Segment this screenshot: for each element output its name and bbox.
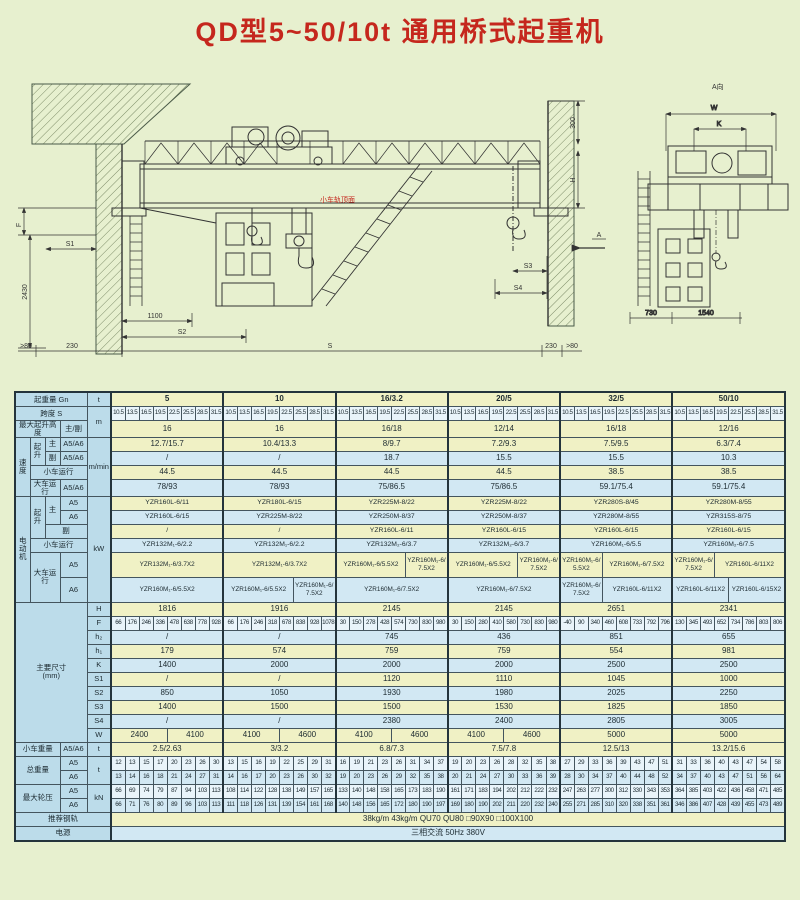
data-cell: 13 <box>111 770 125 784</box>
data-cell: 473 <box>756 798 770 812</box>
data-cell: 44.5 <box>111 465 223 479</box>
data-cell: 277 <box>588 784 602 798</box>
data-cell: 47 <box>728 770 742 784</box>
row-label-cell: F <box>87 616 111 630</box>
data-cell: 730 <box>406 616 420 630</box>
data-cell: 54 <box>756 756 770 770</box>
data-cell: 796 <box>658 616 672 630</box>
data-cell: 140 <box>350 784 364 798</box>
data-cell: 33 <box>588 756 602 770</box>
data-cell: YZR315S-8/75 <box>672 510 785 524</box>
data-cell: 75/86.5 <box>336 479 448 496</box>
data-cell: 733 <box>630 616 644 630</box>
row-label-cell: 跨度 S <box>15 407 87 421</box>
data-cell: 320 <box>616 798 630 812</box>
data-cell: 2000 <box>336 658 448 672</box>
data-cell: 89 <box>167 798 181 812</box>
data-cell: YZR160M₁-6/5.5X2 <box>336 552 406 577</box>
data-cell: 10.5 <box>111 407 125 421</box>
row-label-cell: A5 <box>60 784 87 798</box>
data-cell: 44.5 <box>223 465 335 479</box>
data-cell: 32 <box>322 770 336 784</box>
data-cell: 74 <box>139 784 153 798</box>
data-cell: 655 <box>672 630 785 644</box>
page-title: QD型5~50/10t 通用桥式起重机 <box>0 0 800 51</box>
data-cell: 111 <box>223 798 237 812</box>
data-cell: 19 <box>448 756 462 770</box>
operator-cab <box>130 164 432 306</box>
data-cell: 3/3.2 <box>223 742 335 756</box>
data-cell: 28 <box>504 756 518 770</box>
data-cell: 51 <box>742 770 756 784</box>
data-cell: YZR160L-6/11X2 <box>602 577 672 602</box>
data-cell: 66 <box>111 784 125 798</box>
data-cell: 31.5 <box>322 407 336 421</box>
data-cell: 22 <box>279 756 293 770</box>
data-cell: 48 <box>644 770 658 784</box>
data-cell: 180 <box>406 798 420 812</box>
row-label-cell: S4 <box>87 714 111 728</box>
data-cell: 285 <box>588 798 602 812</box>
data-cell: 6.3/7.4 <box>672 437 785 451</box>
dim-230-right: 230 <box>545 343 557 350</box>
data-cell: 13.5 <box>574 407 588 421</box>
data-cell: 1120 <box>336 672 448 686</box>
row-label-cell: 大车运行 <box>30 479 60 496</box>
data-cell: 158 <box>378 784 392 798</box>
dim-s1: S1 <box>66 241 75 248</box>
data-cell: 38.5 <box>672 465 785 479</box>
data-cell: 5000 <box>560 728 672 742</box>
row-label-cell: 起升 <box>30 496 45 538</box>
rail-top-note: 小车轨顶面 <box>320 195 355 204</box>
data-cell: 35 <box>420 770 434 784</box>
data-cell: 4600 <box>279 728 335 742</box>
data-cell: 16/18 <box>336 421 448 438</box>
data-cell: 14 <box>223 770 237 784</box>
data-cell: 16/18 <box>560 421 672 438</box>
data-cell: 493 <box>700 616 714 630</box>
data-cell: 222 <box>532 784 546 798</box>
data-cell: 37 <box>602 770 616 784</box>
data-cell: 78/93 <box>111 479 223 496</box>
data-cell: YZR160M₁-6/5.5X2 <box>111 577 223 602</box>
data-cell: 13.5 <box>125 407 139 421</box>
data-cell: 156 <box>364 798 378 812</box>
data-cell: YZR132M₂-6/3.7 <box>336 538 448 552</box>
data-cell: 574 <box>392 616 406 630</box>
data-cell: 43 <box>728 756 742 770</box>
data-cell: 75/86.5 <box>448 479 560 496</box>
right-wall <box>548 101 574 326</box>
data-cell: 19.5 <box>265 407 279 421</box>
row-label-cell: A5 <box>60 496 87 510</box>
aux-hook <box>247 208 262 245</box>
data-cell: 139 <box>279 798 293 812</box>
data-cell: 436 <box>728 784 742 798</box>
data-cell: 6.8/7.3 <box>336 742 448 756</box>
data-cell: YZR160L-6/11 <box>336 524 448 538</box>
data-cell: 22.5 <box>504 407 518 421</box>
data-cell: 30 <box>504 770 518 784</box>
data-cell: 13.5 <box>462 407 476 421</box>
dim-230-left: 230 <box>66 343 78 350</box>
data-cell: 10.5 <box>560 407 574 421</box>
data-cell: 66 <box>223 616 237 630</box>
data-cell: 2145 <box>448 602 560 616</box>
data-cell: 66 <box>111 798 125 812</box>
data-cell: 90 <box>574 616 588 630</box>
dim-2430: 2430 <box>22 284 29 300</box>
data-cell: 20 <box>448 770 462 784</box>
data-cell: / <box>111 672 223 686</box>
data-cell: 35 <box>532 756 546 770</box>
dim-gt80-right: >80 <box>566 343 578 350</box>
data-cell: YZR132M₁-6/2.2 <box>111 538 223 552</box>
data-cell: 31.5 <box>434 407 448 421</box>
data-cell: 980 <box>434 616 448 630</box>
data-cell: 31.5 <box>658 407 672 421</box>
data-cell: 1916 <box>223 602 335 616</box>
data-cell: 190 <box>420 798 434 812</box>
row-label-cell: h₁ <box>87 644 111 658</box>
data-cell: 10.5 <box>672 407 686 421</box>
data-cell: 778 <box>195 616 209 630</box>
data-cell: 759 <box>336 644 448 658</box>
data-cell: YZR132M₂-6/3.7 <box>448 538 560 552</box>
row-label-cell: H <box>87 602 111 616</box>
data-cell: 130 <box>672 616 686 630</box>
data-cell: 4600 <box>392 728 448 742</box>
data-cell: 176 <box>237 616 251 630</box>
data-cell: 1078 <box>322 616 336 630</box>
data-cell: 39 <box>546 770 560 784</box>
spec-table: 起重量 Gnt51016/3.220/532/550/10跨度 Sm10.513… <box>14 391 786 842</box>
row-label-cell: K <box>87 658 111 672</box>
data-cell: 21 <box>167 770 181 784</box>
data-cell: 22.5 <box>728 407 742 421</box>
data-cell: 4100 <box>223 728 279 742</box>
data-cell: 38.5 <box>560 465 672 479</box>
data-cell: YZR160M₁-6/5.5X2 <box>448 552 518 577</box>
data-cell: 16/3.2 <box>336 392 448 407</box>
data-cell: 37 <box>686 770 700 784</box>
data-cell: 338 <box>630 798 644 812</box>
bridge-girder <box>112 141 568 216</box>
data-cell: 2805 <box>560 714 672 728</box>
row-label-cell: 最大轮压 <box>15 784 60 812</box>
data-cell: 1045 <box>560 672 672 686</box>
data-cell: 39 <box>616 756 630 770</box>
data-cell: 31.5 <box>209 407 223 421</box>
data-cell: 2500 <box>672 658 785 672</box>
data-cell: 403 <box>700 784 714 798</box>
data-cell: 410 <box>490 616 504 630</box>
data-cell: 154 <box>293 798 307 812</box>
data-cell: 361 <box>658 798 672 812</box>
data-cell: 27 <box>195 770 209 784</box>
data-cell: / <box>111 714 223 728</box>
data-cell: 10.5 <box>448 407 462 421</box>
data-cell: 172 <box>392 798 406 812</box>
data-cell: 27 <box>490 770 504 784</box>
row-label-cell: A6 <box>60 798 87 812</box>
data-cell: 26 <box>293 770 307 784</box>
data-cell: 16.5 <box>251 407 265 421</box>
end-view-trolley <box>668 146 772 184</box>
data-cell: 122 <box>251 784 265 798</box>
data-cell: 4100 <box>448 728 504 742</box>
data-cell: 13 <box>125 756 139 770</box>
data-cell: 7.5/9.5 <box>560 437 672 451</box>
data-cell: 22.5 <box>616 407 630 421</box>
data-cell: 20 <box>265 770 279 784</box>
row-label-cell: S2 <box>87 686 111 700</box>
data-cell: 247 <box>560 784 574 798</box>
data-cell: 300 <box>602 784 616 798</box>
data-cell: / <box>223 524 335 538</box>
dim-k: K <box>717 121 722 128</box>
data-cell: 31 <box>406 756 420 770</box>
data-cell: 3005 <box>672 714 785 728</box>
data-cell: 28.5 <box>644 407 658 421</box>
data-cell: 422 <box>714 784 728 798</box>
data-cell: YZR225M-8/22 <box>223 510 335 524</box>
data-cell: 318 <box>265 616 279 630</box>
data-cell: 161 <box>307 798 321 812</box>
data-cell: YZR180L-6/15 <box>223 496 335 510</box>
data-cell: 40 <box>700 770 714 784</box>
data-cell: 246 <box>251 616 265 630</box>
data-cell: 12 <box>111 756 125 770</box>
data-cell: 830 <box>420 616 434 630</box>
data-cell: 31 <box>209 770 223 784</box>
data-cell: 1980 <box>448 686 560 700</box>
data-cell: 13.5 <box>237 407 251 421</box>
data-cell: 220 <box>518 798 532 812</box>
data-cell: 24 <box>181 770 195 784</box>
data-cell: YZR250M-8/37 <box>448 510 560 524</box>
dim-300: 300 <box>570 117 577 129</box>
data-cell: 96 <box>181 798 195 812</box>
building-walls <box>32 84 574 354</box>
data-cell: 759 <box>448 644 560 658</box>
row-label-cell: A5 <box>60 552 87 577</box>
data-cell: 353 <box>658 784 672 798</box>
data-cell: 14 <box>125 770 139 784</box>
data-cell: 20 <box>350 770 364 784</box>
data-cell: 22.5 <box>392 407 406 421</box>
row-label-cell: 主 <box>45 496 60 524</box>
row-label-cell: 副 <box>45 524 87 538</box>
data-cell: 94 <box>181 784 195 798</box>
data-cell: YZR160L-6/15X2 <box>728 577 785 602</box>
data-cell: 928 <box>209 616 223 630</box>
roof-hatch <box>32 84 190 144</box>
section-arrow-label: A <box>597 232 602 239</box>
main-hook <box>286 234 314 268</box>
data-cell: 197 <box>434 798 448 812</box>
page: QD型5~50/10t 通用桥式起重机 <box>0 0 800 900</box>
row-label-cell: h₂ <box>87 630 111 644</box>
data-cell: 4100 <box>167 728 223 742</box>
data-cell: 150 <box>350 616 364 630</box>
data-cell: 407 <box>700 798 714 812</box>
data-cell: 29 <box>307 756 321 770</box>
data-cell: 10.5 <box>223 407 237 421</box>
data-cell: 79 <box>153 784 167 798</box>
data-cell: 44.5 <box>448 465 560 479</box>
data-cell: 13 <box>223 756 237 770</box>
data-cell: 22.5 <box>167 407 181 421</box>
data-cell: 16 <box>223 421 335 438</box>
row-label-cell: 大车运行 <box>30 552 60 602</box>
row-label-cell: A6 <box>60 577 87 602</box>
row-label-cell: t <box>87 392 111 407</box>
data-cell: 36 <box>532 770 546 784</box>
data-cell: 15 <box>139 756 153 770</box>
row-label-cell: A6 <box>60 510 87 524</box>
data-cell: 131 <box>265 798 279 812</box>
data-cell: 25 <box>293 756 307 770</box>
data-cell: 20 <box>462 756 476 770</box>
data-cell: 2250 <box>672 686 785 700</box>
data-cell: YZR160M₁-6/5.5X2 <box>223 577 293 602</box>
data-cell: 12.7/15.7 <box>111 437 223 451</box>
data-cell: 838 <box>293 616 307 630</box>
data-cell: 2500 <box>560 658 672 672</box>
data-cell: 25.5 <box>518 407 532 421</box>
data-cell: YZR160M₁-6/5.5X2 <box>560 552 602 577</box>
row-label-cell: 最大起升高度 <box>15 421 60 438</box>
data-cell: 87 <box>167 784 181 798</box>
row-label-cell: 主/副 <box>60 421 87 438</box>
end-view-bridge <box>648 184 788 269</box>
data-cell: 78/93 <box>223 479 335 496</box>
data-cell: 28.5 <box>420 407 434 421</box>
data-cell: 2000 <box>223 658 335 672</box>
data-cell: YZR160M₁-6/7.5X2 <box>406 552 448 577</box>
data-cell: 17 <box>251 770 265 784</box>
data-cell: 18 <box>153 770 167 784</box>
data-cell: 16 <box>139 770 153 784</box>
data-cell: 56 <box>756 770 770 784</box>
dim-h: H <box>570 177 577 182</box>
data-cell: YZR280M-8/55 <box>672 496 785 510</box>
data-cell: 2.5/2.63 <box>111 742 223 756</box>
data-cell: 23 <box>279 770 293 784</box>
data-cell: 52 <box>658 770 672 784</box>
data-cell: 40 <box>714 756 728 770</box>
data-cell: 140 <box>336 798 350 812</box>
data-cell: 17 <box>153 756 167 770</box>
data-cell: 31 <box>322 756 336 770</box>
walkway-railing <box>145 141 540 164</box>
data-cell: 30 <box>448 616 462 630</box>
row-label-cell: 总重量 <box>15 756 60 784</box>
data-cell: 280 <box>476 616 490 630</box>
data-cell: 336 <box>153 616 167 630</box>
data-cell: 2651 <box>560 602 672 616</box>
data-cell: 485 <box>771 784 786 798</box>
data-cell: 10 <box>223 392 335 407</box>
data-cell: 114 <box>237 784 251 798</box>
data-cell: 851 <box>560 630 672 644</box>
dim-f: F <box>16 223 23 227</box>
data-cell: 157 <box>307 784 321 798</box>
data-cell: 20/5 <box>448 392 560 407</box>
data-cell: 981 <box>672 644 785 658</box>
data-cell: YZR160M₁-6/7.5X2 <box>602 552 672 577</box>
row-label-cell: 小车运行 <box>30 538 87 552</box>
data-cell: 2400 <box>448 714 560 728</box>
data-cell: 19.5 <box>714 407 728 421</box>
data-cell: 44.5 <box>336 465 448 479</box>
data-cell: 25.5 <box>742 407 756 421</box>
data-cell: 16 <box>251 756 265 770</box>
data-cell: YZR160M₁-6/7.5X2 <box>293 577 335 602</box>
data-cell: 2145 <box>336 602 448 616</box>
data-cell: 31 <box>672 756 686 770</box>
data-cell: YZR132M₁-6/2.2 <box>223 538 335 552</box>
data-cell: 171 <box>462 784 476 798</box>
data-cell: 38 <box>434 770 448 784</box>
row-label-cell: A5/A6 <box>60 437 87 451</box>
dim-gt80-left: >80 <box>20 343 32 350</box>
row-label-cell: A5/A6 <box>60 451 87 465</box>
data-cell: 28.5 <box>756 407 770 421</box>
data-cell: 364 <box>672 784 686 798</box>
data-cell: 2000 <box>448 658 560 672</box>
data-cell: YZR160L-6/15 <box>560 524 672 538</box>
data-cell: 126 <box>251 798 265 812</box>
row-label-cell: A5/A6 <box>60 742 87 756</box>
data-cell: 173 <box>406 784 420 798</box>
data-cell: 128 <box>265 784 279 798</box>
end-view: A向 W K 730 1540 <box>630 82 788 324</box>
data-cell: YZR160L-6/15 <box>111 510 223 524</box>
row-label-cell: 主 <box>45 437 60 451</box>
row-label-cell: 电源 <box>15 826 111 841</box>
data-cell: 340 <box>588 616 602 630</box>
data-cell: 34 <box>420 756 434 770</box>
data-cell: 343 <box>644 784 658 798</box>
row-label-cell: 主要尺寸 (mm) <box>15 602 87 742</box>
data-cell: 928 <box>307 616 321 630</box>
data-cell: YZR250M-8/37 <box>336 510 448 524</box>
data-cell: / <box>111 630 223 644</box>
data-cell: 32 <box>406 770 420 784</box>
data-cell: / <box>223 630 335 644</box>
dim-1540: 1540 <box>698 310 714 317</box>
data-cell: YZR225M-8/22 <box>448 496 560 510</box>
data-cell: 28.5 <box>195 407 209 421</box>
data-cell: 19.5 <box>490 407 504 421</box>
data-cell: 24 <box>476 770 490 784</box>
row-label-cell: t <box>87 742 111 756</box>
data-cell: 36 <box>602 756 616 770</box>
row-label-cell: kW <box>87 496 111 602</box>
data-cell: 1500 <box>336 700 448 714</box>
data-cell: 13.5 <box>686 407 700 421</box>
data-cell: 21 <box>364 756 378 770</box>
data-cell: 149 <box>293 784 307 798</box>
data-cell: 2380 <box>336 714 448 728</box>
data-cell: 47 <box>742 756 756 770</box>
data-cell: 113 <box>209 798 223 812</box>
data-cell: 580 <box>504 616 518 630</box>
data-cell: YZR160M₁-6/7.5X2 <box>336 577 448 602</box>
